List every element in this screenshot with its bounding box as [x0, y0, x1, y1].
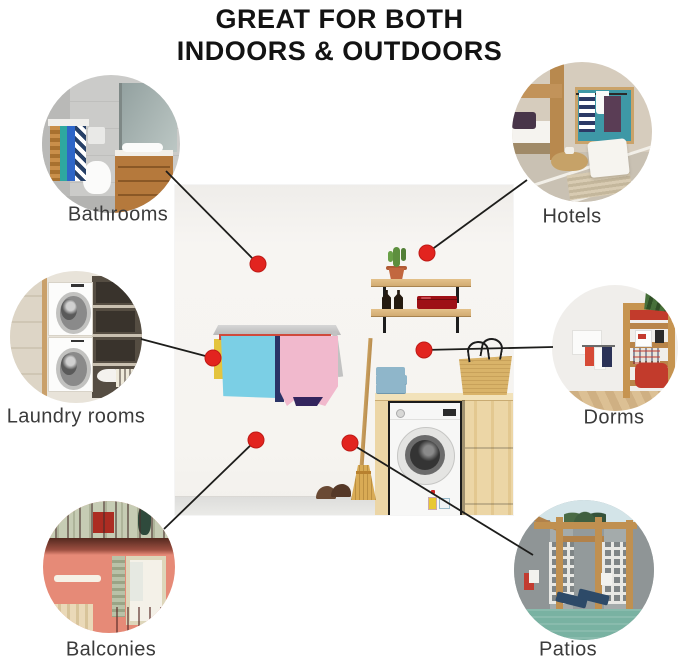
washer-display — [443, 409, 456, 416]
white-towel — [529, 570, 539, 583]
hanging-towel — [50, 126, 60, 181]
plum-towel — [604, 96, 621, 132]
red-case-lid-line — [417, 299, 457, 300]
energy-label-sticker — [428, 497, 437, 510]
bottle — [394, 290, 403, 309]
cubby-shelf — [92, 363, 142, 366]
cabinet-gap-shadow — [462, 400, 465, 515]
balcony-shadow-band — [43, 538, 175, 555]
storage-basket — [96, 311, 136, 332]
washer-sticker — [439, 498, 450, 509]
shelf-bracket — [456, 317, 459, 333]
shelf-bracket — [383, 317, 386, 333]
folded-towel — [376, 384, 406, 394]
facade-sign-bar — [54, 575, 102, 582]
drawer-groove — [465, 503, 513, 505]
round-basket — [551, 152, 587, 172]
dorms-photo-circle — [552, 285, 678, 411]
title-line-1: GREAT FOR BOTH — [0, 3, 679, 35]
cactus-plant — [401, 248, 406, 261]
machine-panel — [71, 340, 84, 343]
plaid-pillow — [633, 348, 661, 364]
patios-photo-circle — [514, 500, 654, 640]
broom-binding — [356, 471, 371, 474]
bathroom-mirror — [119, 83, 177, 152]
bathrooms-label: Bathrooms — [68, 204, 168, 227]
washer-dial — [396, 409, 405, 418]
blue-towel — [221, 336, 278, 398]
drawer-groove — [465, 447, 513, 449]
bed-post — [668, 295, 676, 398]
toilet-flush-panel — [88, 127, 106, 144]
machine-panel — [71, 284, 84, 287]
floor-cushion — [587, 138, 630, 178]
center-product-photo — [175, 185, 513, 515]
toilet — [83, 161, 111, 194]
navy-towel — [602, 347, 612, 367]
bunk-shadow — [512, 143, 551, 154]
plant-pot — [387, 268, 406, 279]
laundry-rooms-label: Laundry rooms — [7, 406, 146, 429]
red-case-highlight — [421, 297, 431, 299]
hanging-towel — [67, 126, 75, 181]
bunk-pillow — [512, 112, 536, 129]
pool-water — [514, 609, 654, 640]
cubby-shelf — [92, 334, 142, 337]
hanging-towel — [75, 126, 86, 181]
infographic-canvas: GREAT FOR BOTH INDOORS & OUTDOORS — [0, 0, 679, 661]
towel-rack-shelf — [48, 119, 89, 126]
shoe — [331, 484, 351, 497]
washer-drum — [410, 440, 440, 470]
closet-side-shelves — [10, 271, 42, 403]
door-glass — [130, 562, 143, 602]
vanity-drawer-line — [118, 194, 170, 196]
washer-logo-sticker — [431, 490, 435, 494]
balcony-railing — [43, 501, 175, 541]
bunk-post — [550, 62, 564, 160]
vanity-drawer-line — [118, 180, 170, 182]
white-towel — [601, 573, 612, 586]
wall-shelf-bottom — [371, 309, 471, 317]
wall-box — [655, 330, 664, 343]
folded-towel-stack — [376, 367, 407, 393]
hotels-label: Hotels — [542, 206, 601, 229]
dorms-label: Dorms — [584, 407, 645, 430]
vanity-drawer-line — [118, 166, 170, 168]
wood-trim — [42, 271, 47, 403]
bunk-beam — [512, 84, 562, 98]
storage-basket — [96, 282, 136, 303]
folded-linens — [116, 369, 134, 387]
red-wall-sign — [638, 334, 647, 339]
cup — [565, 147, 573, 154]
red-cushion — [635, 363, 668, 388]
laundry-rooms-photo-circle — [10, 271, 142, 403]
page-title: GREAT FOR BOTH INDOORS & OUTDOORS — [0, 3, 679, 68]
cubby-shelf — [92, 305, 142, 308]
concrete-wall — [514, 520, 550, 615]
lower-railing — [116, 607, 175, 633]
striped-towel — [579, 93, 594, 132]
pergola-beam — [534, 522, 638, 529]
basket-handle — [479, 336, 504, 360]
bathroom-sink — [122, 143, 163, 153]
broom-handle — [359, 338, 372, 468]
lower-slats — [43, 604, 93, 633]
balconies-photo-circle — [43, 501, 175, 633]
cactus-plant — [393, 247, 400, 267]
hotels-photo-circle — [512, 62, 652, 202]
navy-towel-corner — [293, 397, 323, 406]
wall-shelf-top — [371, 279, 471, 287]
straw-basket-weave — [459, 356, 512, 395]
hanging-towel — [60, 126, 67, 181]
storage-basket — [96, 340, 136, 361]
bed-post — [623, 303, 631, 399]
bathrooms-photo-circle — [42, 75, 180, 213]
pergola-post — [626, 520, 633, 610]
pink-towel — [280, 336, 338, 406]
patios-label: Patios — [539, 639, 597, 661]
balconies-label: Balconies — [66, 639, 156, 661]
